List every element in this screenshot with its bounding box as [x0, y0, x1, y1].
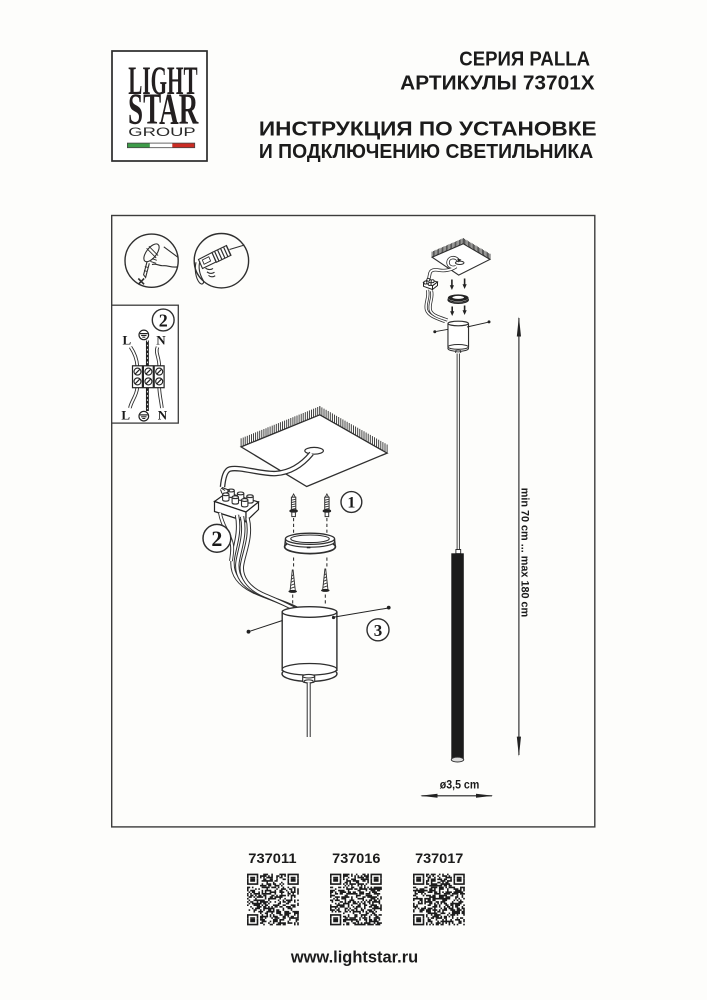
- svg-text:737011: 737011: [248, 851, 297, 866]
- svg-text:N: N: [158, 408, 168, 423]
- svg-text:ø3,5 cm: ø3,5 cm: [440, 780, 480, 792]
- svg-text:1: 1: [347, 495, 355, 512]
- svg-text:И ПОДКЛЮЧЕНИЮ СВЕТИЛЬНИКА: И ПОДКЛЮЧЕНИЮ СВЕТИЛЬНИКА: [259, 141, 593, 163]
- svg-text:2: 2: [211, 526, 222, 551]
- svg-text:GROUP: GROUP: [128, 125, 195, 139]
- svg-text:min 70 cm ... max 180 cm: min 70 cm ... max 180 cm: [519, 488, 531, 618]
- svg-text:3: 3: [374, 621, 383, 640]
- svg-text:737016: 737016: [332, 851, 381, 866]
- svg-text:www.lightstar.ru: www.lightstar.ru: [290, 948, 418, 967]
- svg-text:АРТИКУЛЫ 73701X: АРТИКУЛЫ 73701X: [400, 73, 595, 95]
- svg-text:ИНСТРУКЦИЯ ПО УСТАНОВКЕ: ИНСТРУКЦИЯ ПО УСТАНОВКЕ: [259, 119, 597, 141]
- svg-text:СЕРИЯ PALLA: СЕРИЯ PALLA: [459, 48, 590, 70]
- svg-text:737017: 737017: [415, 851, 464, 866]
- svg-text:2: 2: [159, 310, 168, 330]
- svg-text:L: L: [121, 408, 130, 423]
- svg-text:N: N: [156, 333, 166, 348]
- svg-text:L: L: [122, 333, 131, 348]
